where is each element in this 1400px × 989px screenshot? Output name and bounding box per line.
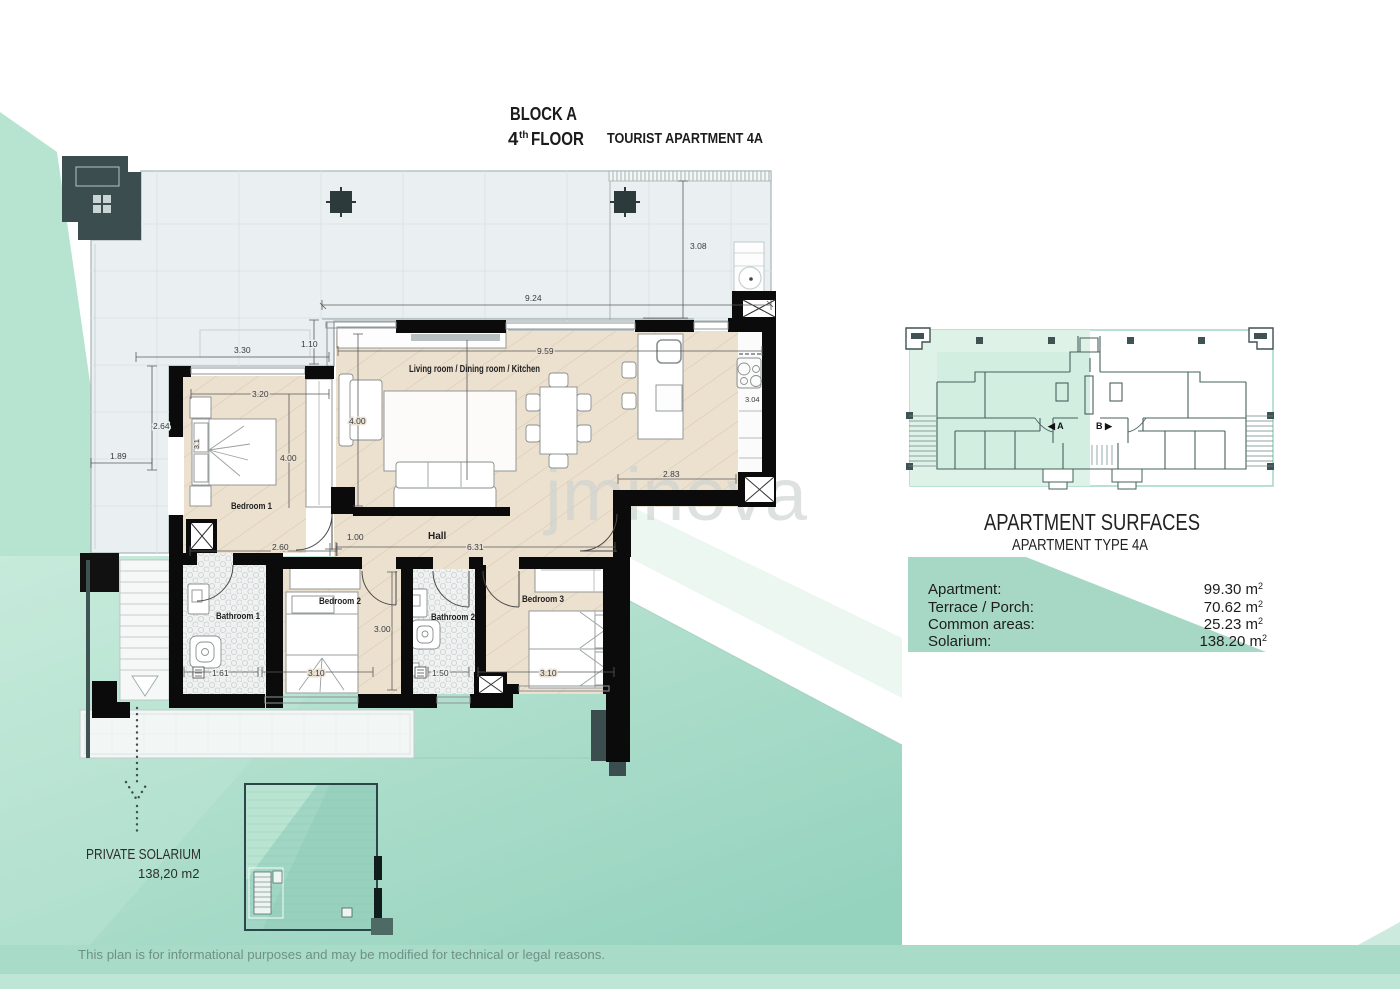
svg-text:Solarium:: Solarium: (928, 633, 991, 650)
svg-text:Hall: Hall (428, 531, 447, 542)
svg-text:BLOCK A: BLOCK A (510, 103, 577, 124)
svg-text:1.61: 1.61 (212, 668, 229, 678)
svg-text:3.08: 3.08 (690, 241, 707, 251)
svg-text:◀ A: ◀ A (1047, 421, 1064, 431)
svg-text:9.24: 9.24 (525, 293, 542, 303)
svg-text:PRIVATE SOLARIUM: PRIVATE SOLARIUM (86, 847, 201, 863)
svg-text:3.1: 3.1 (194, 439, 201, 449)
svg-text:3.10: 3.10 (540, 668, 557, 678)
svg-text:This plan is for informational: This plan is for informational purposes … (78, 948, 605, 962)
svg-text:6.31: 6.31 (467, 542, 484, 552)
svg-text:2.64: 2.64 (153, 421, 170, 431)
svg-text:3.30: 3.30 (234, 345, 251, 355)
svg-text:3.04: 3.04 (745, 395, 760, 404)
svg-text:1.50: 1.50 (432, 668, 449, 678)
svg-text:4.00: 4.00 (349, 416, 366, 426)
svg-text:70.62 m2: 70.62 m2 (1204, 599, 1263, 616)
svg-text:9.59: 9.59 (537, 346, 554, 356)
svg-text:3.10: 3.10 (308, 668, 325, 678)
svg-text:25.23 m2: 25.23 m2 (1204, 616, 1263, 633)
svg-text:138,20 m2: 138,20 m2 (138, 866, 199, 881)
svg-text:4: 4 (508, 128, 519, 149)
svg-text:FLOOR: FLOOR (531, 128, 584, 149)
svg-text:1.00: 1.00 (347, 532, 364, 542)
svg-text:Terrace / Porch:: Terrace / Porch: (928, 599, 1034, 616)
svg-text:2.60: 2.60 (272, 542, 289, 552)
svg-text:Bedroom 1: Bedroom 1 (231, 501, 273, 512)
svg-text:APARTMENT SURFACES: APARTMENT SURFACES (984, 509, 1200, 535)
svg-text:3.20: 3.20 (252, 389, 269, 399)
svg-text:1.89: 1.89 (110, 451, 127, 461)
svg-text:99.30 m2: 99.30 m2 (1204, 581, 1263, 598)
svg-text:APARTMENT TYPE 4A: APARTMENT TYPE 4A (1012, 537, 1149, 554)
svg-text:Common areas:: Common areas: (928, 616, 1035, 633)
svg-text:Apartment:: Apartment: (928, 581, 1001, 598)
svg-text:B ▶: B ▶ (1096, 421, 1113, 431)
svg-text:th: th (519, 130, 528, 141)
svg-text:2.83: 2.83 (663, 469, 680, 479)
svg-text:138.20 m2: 138.20 m2 (1199, 633, 1267, 650)
svg-text:Bathroom 1: Bathroom 1 (216, 611, 261, 622)
svg-text:Bathroom 2: Bathroom 2 (431, 612, 475, 623)
svg-text:1.10: 1.10 (301, 339, 318, 349)
svg-text:Living room / Dining room / Ki: Living room / Dining room / Kitchen (409, 364, 540, 375)
svg-text:TOURIST APARTMENT 4A: TOURIST APARTMENT 4A (607, 131, 763, 147)
svg-text:Bedroom 3: Bedroom 3 (522, 594, 564, 605)
svg-text:3.00: 3.00 (374, 624, 391, 634)
svg-text:Bedroom 2: Bedroom 2 (319, 596, 361, 607)
svg-text:4.00: 4.00 (280, 453, 297, 463)
